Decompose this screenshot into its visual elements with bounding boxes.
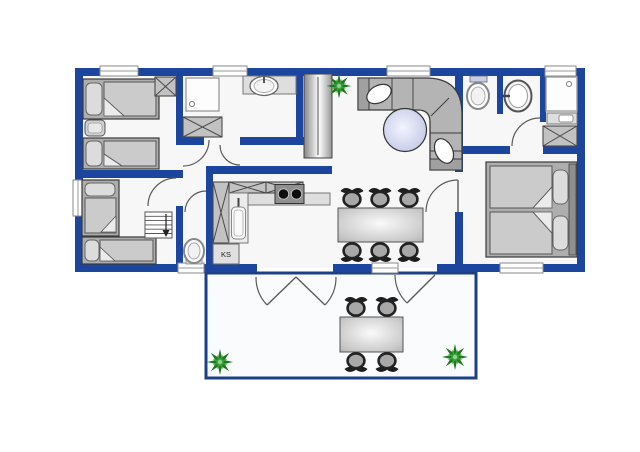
bedroom-right [486,162,577,257]
washbasin [559,115,573,122]
floor-plan: KS [0,0,640,452]
dining-chair [369,188,392,207]
wardrobe [543,126,577,146]
tall-cabinet [213,182,229,243]
wall-bedrooms-divider [75,170,183,178]
wall-outer-bottom [75,264,257,272]
burner-icon [278,189,288,199]
window [100,66,138,76]
single-bed [82,180,119,236]
wall-bathroom-east [296,76,303,137]
fridge: KS [213,244,239,264]
dining-chair [398,188,421,207]
window [178,263,204,273]
window [213,66,247,76]
toilet-tank [470,76,487,82]
wall-bedroom3-north [455,146,510,154]
window [500,263,543,273]
single-bed [83,138,159,169]
coffee-table [384,109,427,152]
toilet-bowl [471,87,485,105]
single-bed [83,79,159,119]
wall-bathroom-south [176,137,204,145]
wall-shower-room [540,76,546,122]
shower-room-right [543,77,577,146]
headboard [569,164,576,255]
plant-icon [327,74,352,99]
terrace-chair [345,353,368,372]
dining-table [338,208,423,242]
dining-chair [341,188,364,207]
plant-icon [442,344,468,370]
fridge-label: KS [221,250,231,259]
wardrobe [155,77,176,96]
upper-cabinet [229,182,266,193]
wall-bathroom-south [240,137,305,145]
stove [275,185,304,204]
dining-chair [341,243,364,262]
shower [546,77,577,111]
wall-bedroom3-west [455,212,463,264]
terrace-table [340,317,403,352]
terrace-chair [376,353,399,372]
terrace-chair [345,297,368,316]
stairs [145,212,172,238]
wall-bedroom1-east [176,76,183,140]
wall-wc-west [176,206,183,264]
washbasin-bowl [509,85,528,108]
terrace-chair [376,297,399,316]
wall-kitchen-west [206,174,213,264]
nightstand-top [88,123,102,133]
tall-wardrobe [304,74,332,158]
toilet-bowl [188,243,200,259]
pillow [553,170,568,204]
burner-icon [291,189,301,199]
floor-plan-drawing: KS [0,0,640,452]
pillow [553,216,568,250]
window [387,66,430,76]
terrace [206,273,476,378]
wardrobe [183,117,222,137]
wall-wc2-partition [497,72,503,114]
window [545,66,576,76]
window [372,263,398,273]
wc-left [184,239,204,264]
wall-bedroom3-north [543,146,585,154]
plant-icon [207,349,233,375]
wall-outer-right [577,68,585,272]
kitchen-sink-unit [229,193,248,243]
dining-chair [398,243,421,262]
dining-chair [369,243,392,262]
wall-kitchen-north [206,166,332,174]
single-bed [82,237,156,264]
